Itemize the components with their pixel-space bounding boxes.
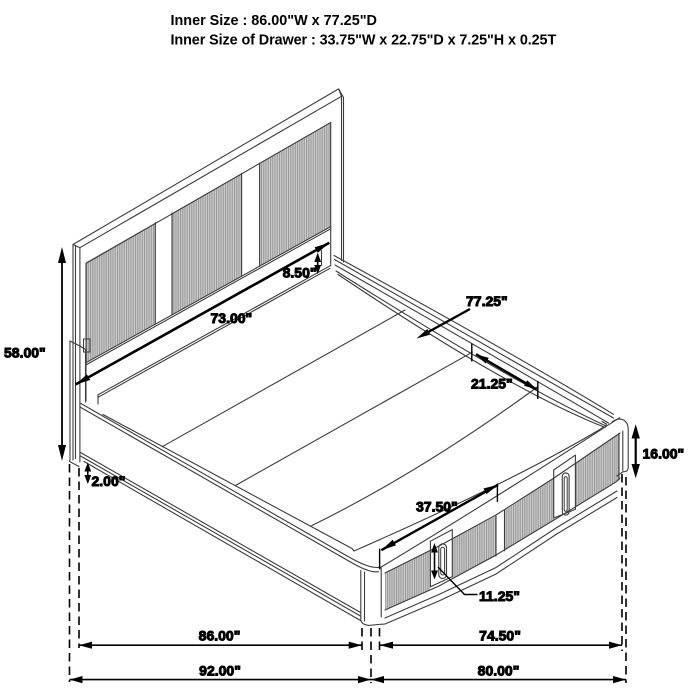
svg-text:74.50": 74.50" [479, 628, 521, 644]
svg-text:77.25": 77.25" [466, 293, 508, 309]
svg-text:58.00": 58.00" [4, 345, 46, 361]
svg-text:16.00": 16.00" [643, 446, 685, 462]
svg-text:86.00": 86.00" [199, 628, 241, 644]
svg-text:92.00": 92.00" [199, 663, 241, 679]
svg-text:Inner Size of Drawer : 33.75"W: Inner Size of Drawer : 33.75"W x 22.75"D… [171, 33, 557, 49]
svg-text:Inner Size : 86.00"W x 77.25"D: Inner Size : 86.00"W x 77.25"D [171, 13, 377, 29]
svg-text:21.25": 21.25" [471, 376, 513, 392]
svg-text:11.25": 11.25" [479, 588, 520, 604]
svg-text:73.00": 73.00" [211, 310, 253, 326]
svg-text:8.50": 8.50" [283, 265, 317, 281]
svg-text:37.50": 37.50" [416, 499, 458, 515]
svg-text:2.00": 2.00" [92, 473, 126, 489]
svg-text:80.00": 80.00" [478, 663, 520, 679]
